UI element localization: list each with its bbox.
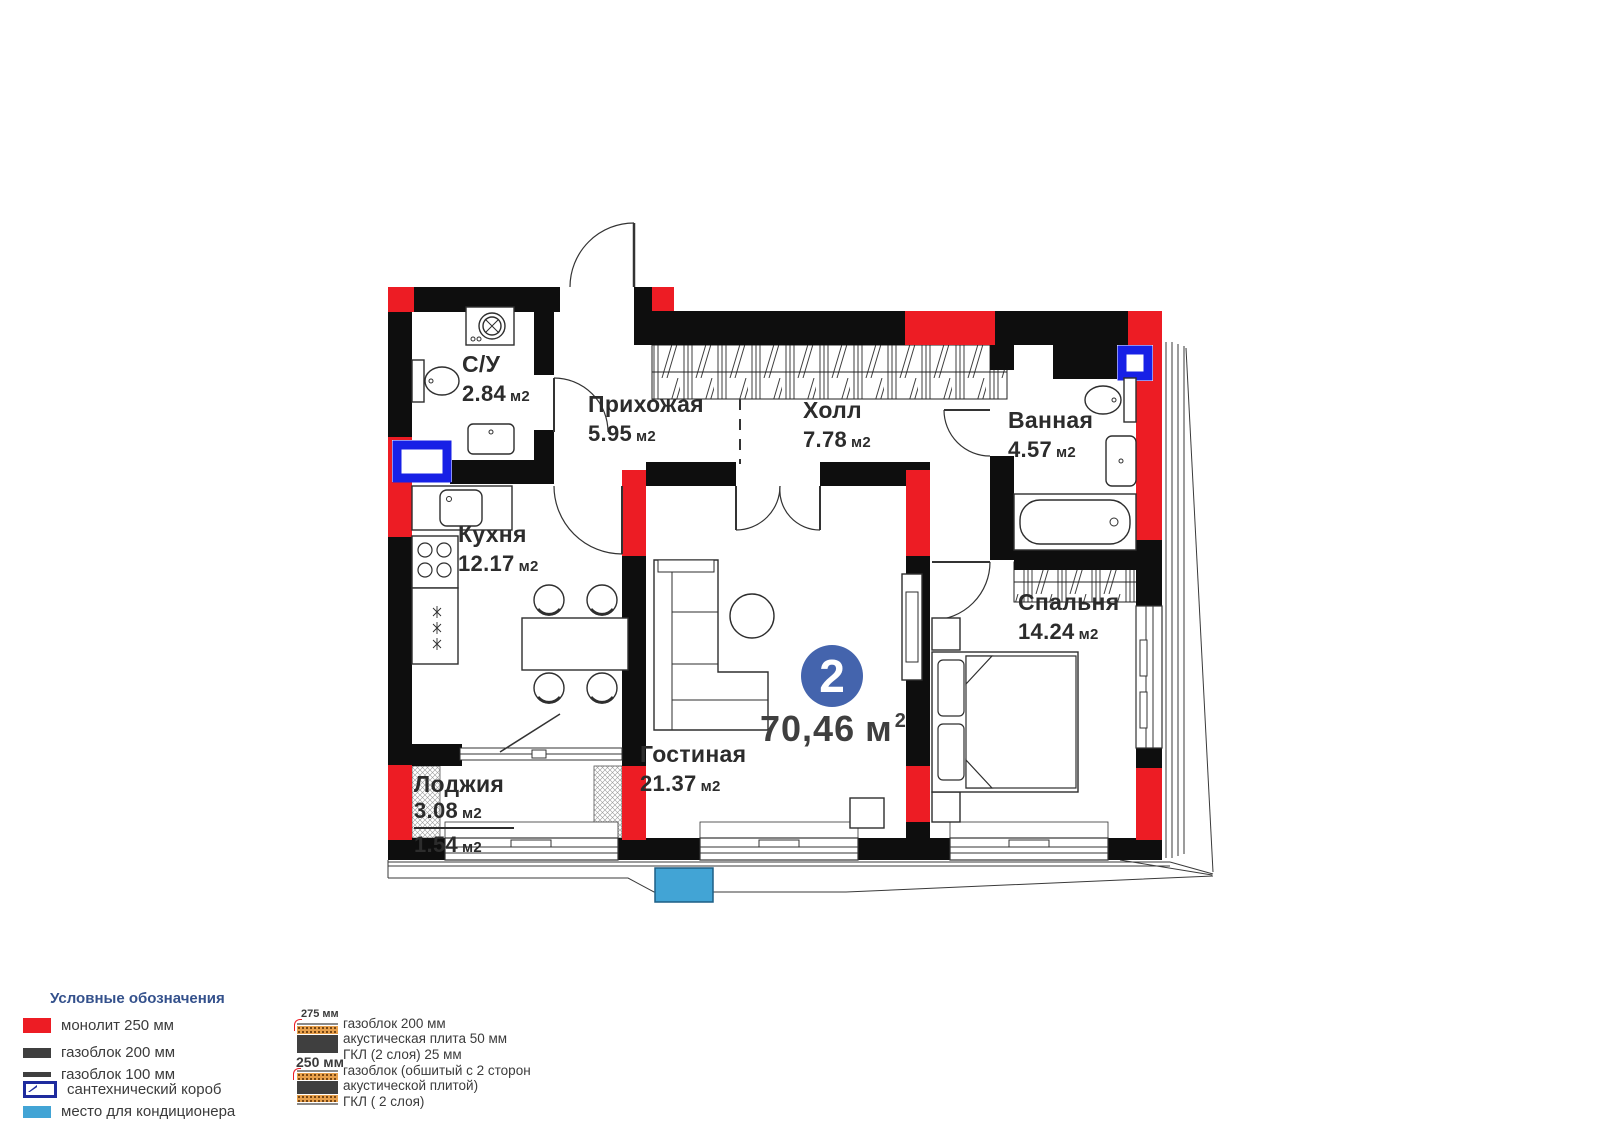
room-name: Лоджия xyxy=(414,772,514,796)
room-name: Ванная xyxy=(1008,408,1093,432)
kitchen-cabinet xyxy=(412,588,458,664)
sink-icon-bath xyxy=(1106,436,1136,486)
washing-machine-icon xyxy=(466,307,514,345)
walltype-250-swatch xyxy=(297,1070,338,1106)
walltype-275-swatch xyxy=(297,1023,338,1054)
living-double-door xyxy=(736,486,820,530)
room-label-living: Гостиная 21.37м2 xyxy=(640,742,746,795)
room-name: Кухня xyxy=(458,522,539,546)
walltype-250-size: 250 мм xyxy=(296,1054,344,1070)
sanitary-box-swatch xyxy=(23,1081,57,1098)
room-name: Спальня xyxy=(1018,590,1119,614)
gasblock100-swatch xyxy=(23,1072,51,1077)
dining-table xyxy=(522,618,628,670)
legend-title: Условные обозначения xyxy=(50,990,225,1007)
nightstand-bottom xyxy=(932,792,960,822)
gasblock200-swatch xyxy=(23,1048,51,1058)
bathtub-icon xyxy=(1014,494,1136,550)
side-table xyxy=(850,798,884,828)
furniture-kitchen xyxy=(412,486,628,703)
window-bedroom-east xyxy=(1136,606,1162,748)
room-name: Гостиная xyxy=(640,742,746,766)
window-bedroom-south xyxy=(950,822,1108,860)
floor-plan-drawing xyxy=(0,0,1600,1131)
walltype-275-size: 275 мм xyxy=(301,1008,339,1020)
monolith-swatch xyxy=(23,1018,51,1033)
sofa-l-shape xyxy=(654,560,768,730)
unit-total-area: 70,46м2 xyxy=(760,708,907,750)
room-label-bathroom: Ванная 4.57м2 xyxy=(1008,408,1093,461)
room-label-hall: Холл 7.78м2 xyxy=(803,398,871,451)
toilet-icon xyxy=(412,360,459,402)
legend-item-sanitary-box: сантехнический короб xyxy=(23,1081,222,1098)
window-living xyxy=(700,822,858,860)
ac-spot-swatch xyxy=(23,1106,51,1118)
entry-door xyxy=(570,223,634,287)
room-name: С/У xyxy=(462,352,530,376)
fixtures-bathroom xyxy=(1014,378,1136,550)
walltype-275-description: газоблок 200 мм акустическая плита 50 мм… xyxy=(343,1016,507,1062)
walltype-250-description: газоблок (обшитый с 2 сторон акустическо… xyxy=(343,1063,531,1109)
room-name: Холл xyxy=(803,398,871,422)
room-name: Прихожая xyxy=(588,392,704,416)
bathroom-door xyxy=(944,410,990,456)
ac-spot xyxy=(655,868,713,902)
legend-item-monolith: монолит 250 мм xyxy=(23,1017,174,1034)
bedroom-door xyxy=(932,562,990,620)
loggia-divider-line xyxy=(414,827,514,829)
kitchen-door xyxy=(554,486,622,554)
unit-rooms-count: 2 xyxy=(819,649,845,703)
loggia-slider-door xyxy=(460,714,622,760)
unit-rooms-badge: 2 xyxy=(801,645,863,707)
room-label-loggia: Лоджия 3.08м2 1.54м2 xyxy=(414,772,514,856)
legend-item-gasblock200: газоблок 200 мм xyxy=(23,1044,175,1061)
legend-item-ac-spot: место для кондиционера xyxy=(23,1103,235,1120)
nightstand-top xyxy=(932,618,960,650)
stove-icon xyxy=(412,536,458,588)
room-label-su: С/У 2.84м2 xyxy=(462,352,530,405)
tv-unit xyxy=(902,574,922,680)
coffee-table xyxy=(730,594,774,638)
room-label-kitchen: Кухня 12.17м2 xyxy=(458,522,539,575)
double-bed xyxy=(932,652,1078,792)
room-label-hallway: Прихожая 5.95м2 xyxy=(588,392,704,445)
small-sink-icon xyxy=(468,424,514,454)
room-label-bedroom: Спальня 14.24м2 xyxy=(1018,590,1119,643)
furniture-bedroom xyxy=(932,618,1078,822)
floor-plan-page: С/У 2.84м2 Прихожая 5.95м2 Холл 7.78м2 В… xyxy=(0,0,1600,1131)
